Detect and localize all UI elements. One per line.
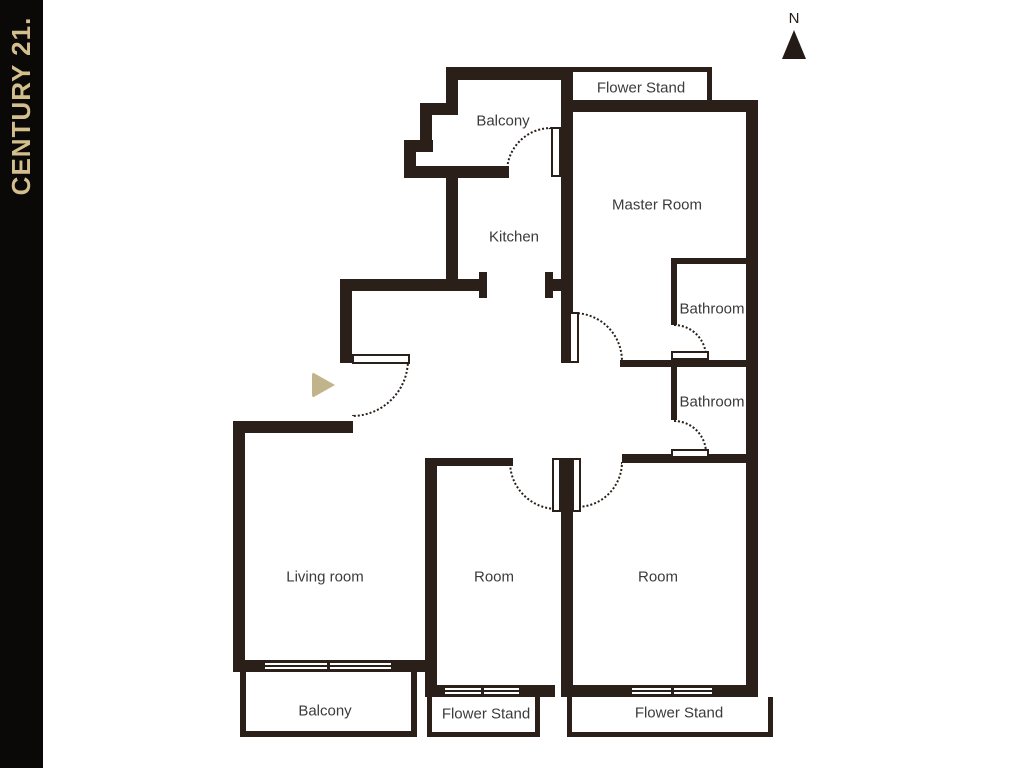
wall-hall-left xyxy=(340,279,352,363)
room-label-kitchen: Kitchen xyxy=(489,229,539,246)
door-swing-arc-balcony xyxy=(506,127,551,172)
wall-room1-top xyxy=(425,458,513,466)
compass-north-label: N xyxy=(780,10,808,27)
wall-living-left xyxy=(233,421,245,672)
window-divider xyxy=(481,688,484,694)
door-swing-arc-room-left xyxy=(509,462,557,510)
door-panel-master xyxy=(569,312,579,363)
room-label-room-left: Room xyxy=(474,569,514,586)
room-label-flower-stand-top: Flower Stand xyxy=(597,80,685,97)
door-panel-bathroom1 xyxy=(671,351,709,360)
wall-bathroom1-top xyxy=(671,258,752,264)
door-panel-entrance xyxy=(352,354,410,364)
entrance-marker-icon xyxy=(312,372,335,398)
door-panel-room-left xyxy=(552,458,561,512)
room-label-flower-stand-bottom-left: Flower Stand xyxy=(442,706,530,723)
window-divider xyxy=(671,688,674,694)
window-living-room xyxy=(263,661,393,671)
wall-bath-mid xyxy=(620,360,758,367)
wall-kitchen-bottom xyxy=(340,279,460,291)
wall-room1-left xyxy=(425,458,437,697)
window-divider xyxy=(327,663,330,669)
door-panel-room-right xyxy=(572,458,581,512)
room-label-living-room: Living room xyxy=(286,569,364,586)
wall-kitchen-opening-cap-left xyxy=(479,272,487,298)
wall-living-top xyxy=(233,421,353,433)
room-label-balcony-bottom: Balcony xyxy=(298,703,351,720)
room-label-room-right: Room xyxy=(638,569,678,586)
room-label-balcony-top: Balcony xyxy=(476,113,529,130)
north-arrow-icon xyxy=(782,30,806,59)
door-panel-balcony xyxy=(551,127,561,177)
door-swing-arc-master xyxy=(574,312,623,361)
wall-balcony-top xyxy=(446,67,573,80)
wall-kitchen-left xyxy=(446,166,458,291)
wall-right-exterior xyxy=(746,100,758,697)
door-swing-arc-room-right xyxy=(577,462,623,508)
room-label-master-room: Master Room xyxy=(612,197,702,214)
room-label-bathroom-upper: Bathroom xyxy=(679,301,744,318)
wall-kitchen-opening-stub-right xyxy=(551,279,561,291)
wall-bathroom2-left xyxy=(671,367,677,420)
room-label-flower-stand-bottom-right: Flower Stand xyxy=(635,705,723,722)
door-panel-bathroom2 xyxy=(671,449,709,458)
window-room-right xyxy=(630,686,714,696)
floor-plan-page: CENTURY 21. N xyxy=(0,0,1024,768)
room-label-bathroom-lower: Bathroom xyxy=(679,394,744,411)
window-room-left xyxy=(443,686,521,696)
door-swing-arc-entrance xyxy=(352,360,409,417)
wall-bathroom1-left xyxy=(671,258,677,325)
brand-logo-text: CENTURY 21. xyxy=(6,0,36,246)
brand-sidebar: CENTURY 21. xyxy=(0,0,43,768)
